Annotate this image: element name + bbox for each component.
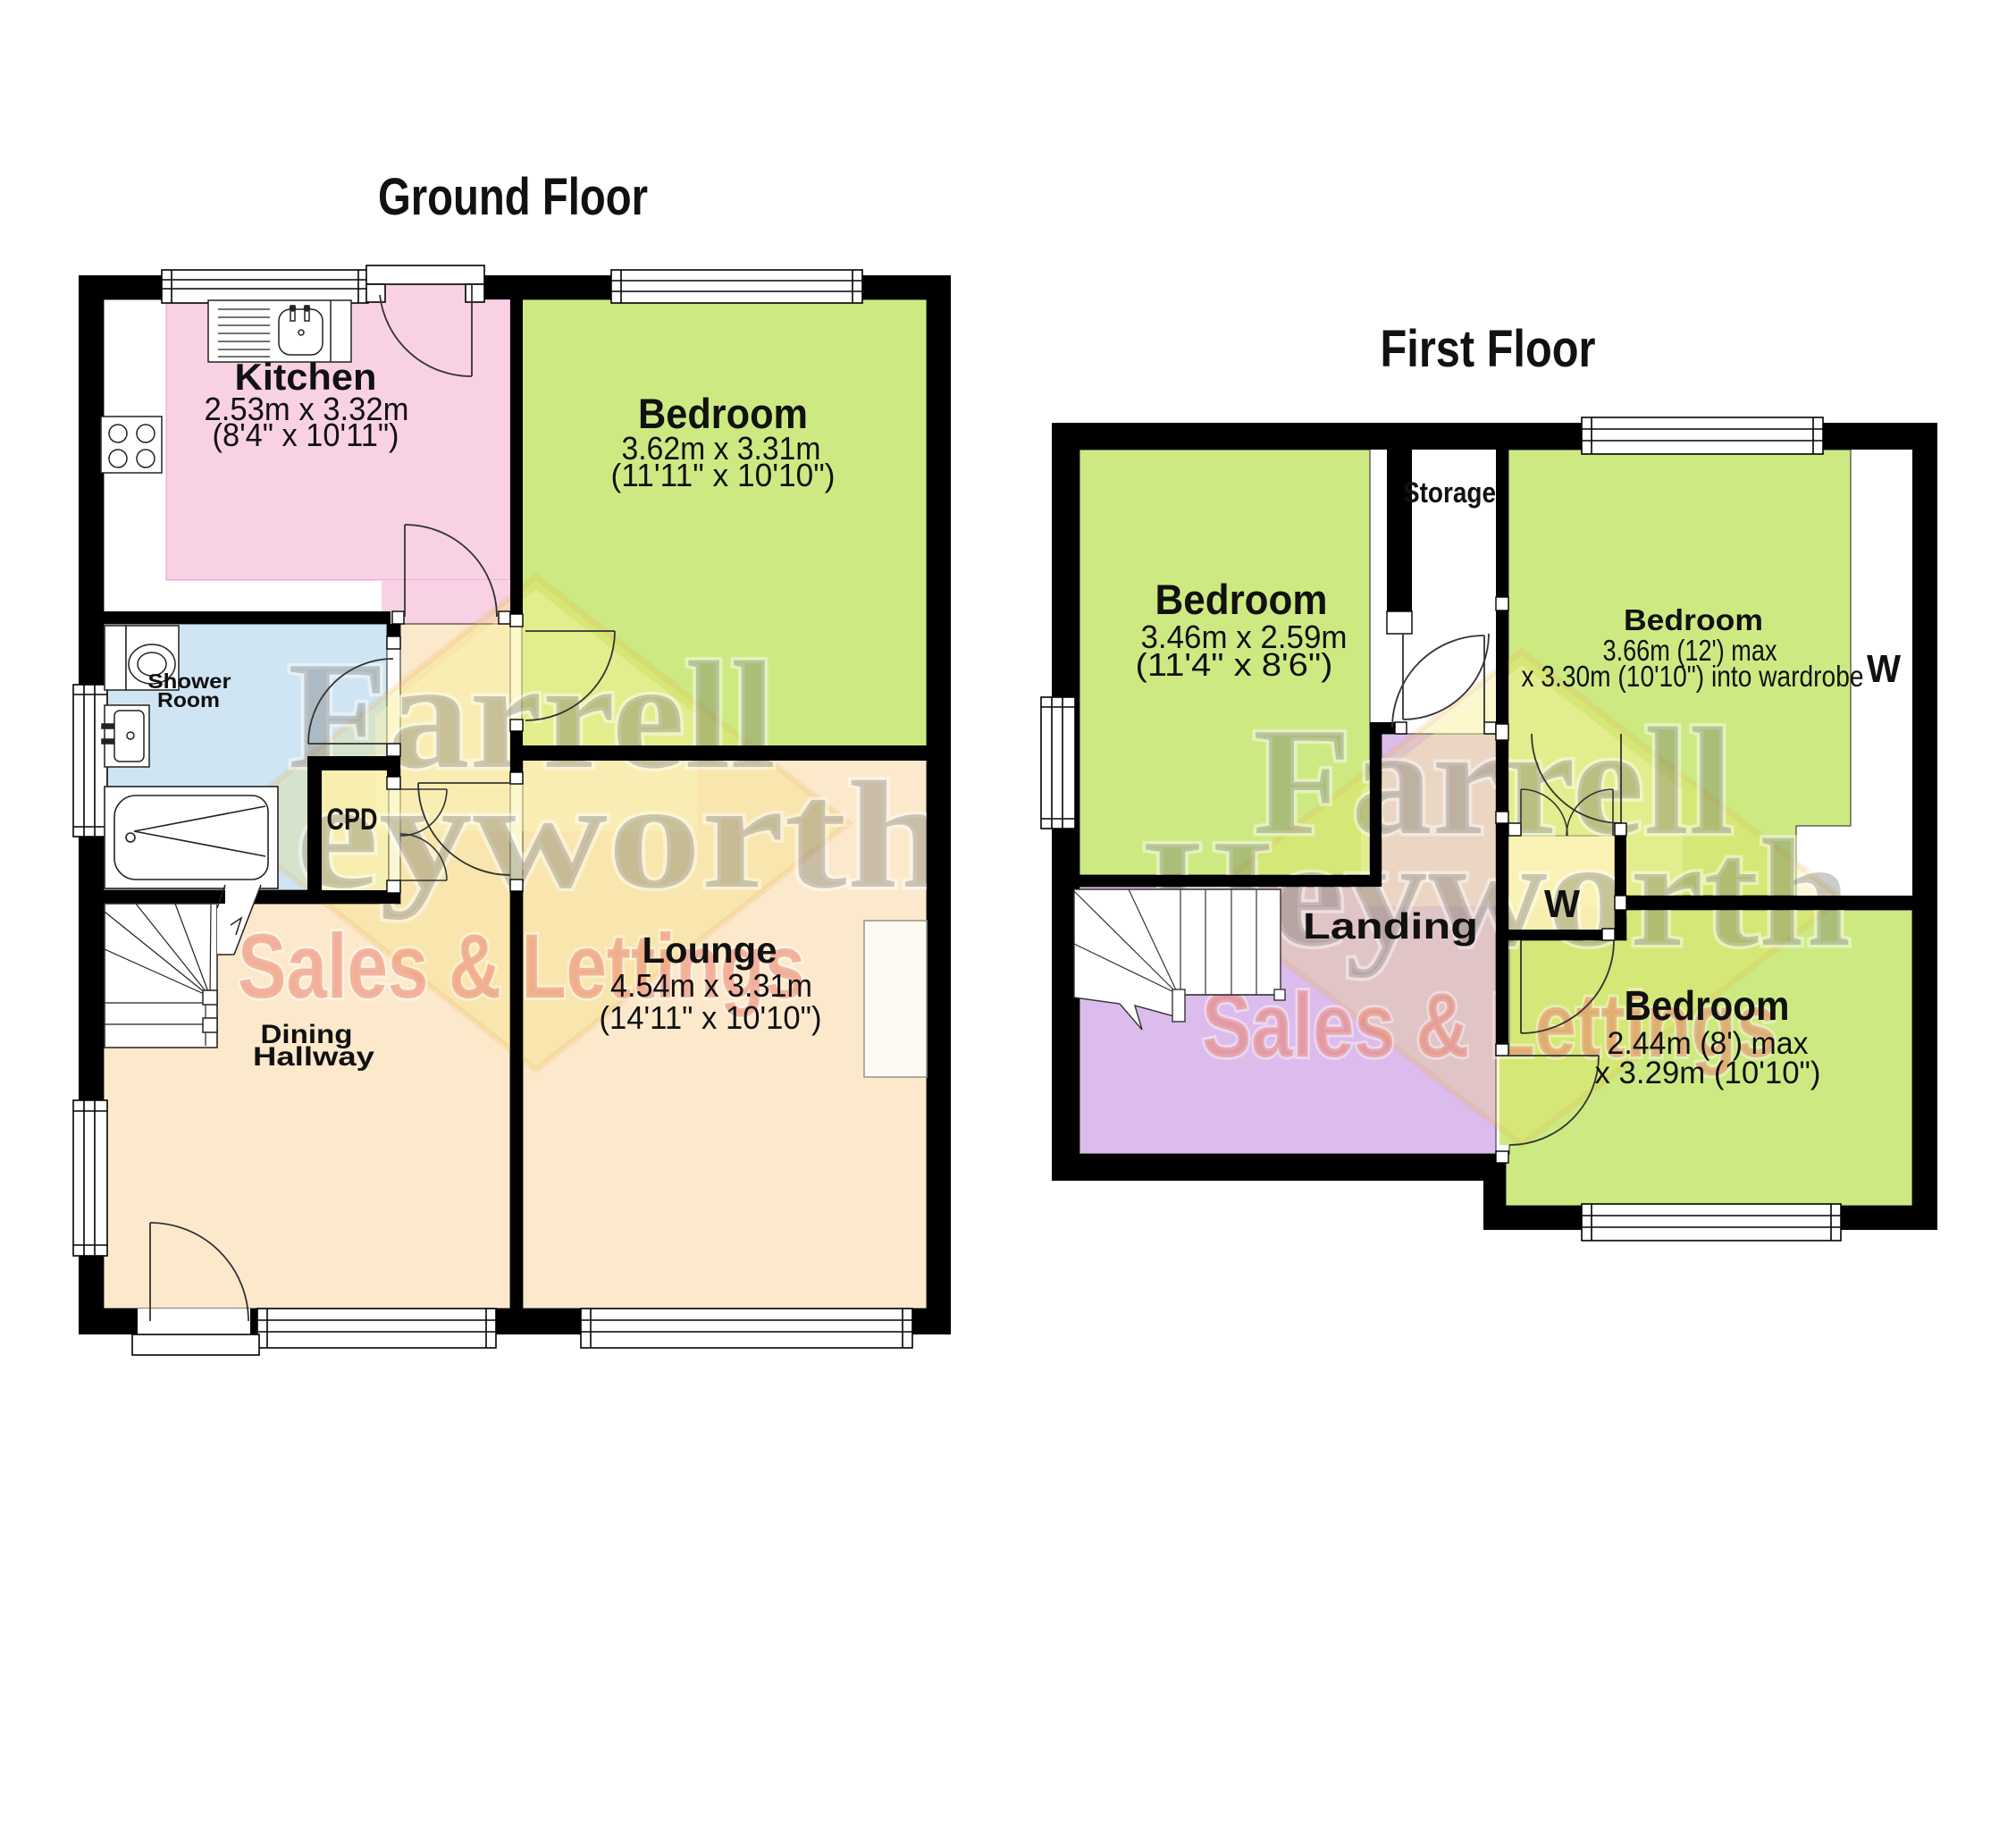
svg-text:CPD: CPD (327, 803, 378, 837)
svg-text:(11'4" x 8'6"): (11'4" x 8'6") (1136, 646, 1333, 683)
svg-text:Ground Floor: Ground Floor (378, 168, 648, 226)
svg-text:x 3.29m (10'10"): x 3.29m (10'10") (1595, 1056, 1821, 1090)
svg-text:(14'11" x 10'10"): (14'11" x 10'10") (600, 999, 822, 1036)
svg-text:(11'11" x 10'10"): (11'11" x 10'10") (611, 457, 836, 493)
svg-text:Bedroom: Bedroom (1625, 982, 1790, 1029)
svg-text:Lounge: Lounge (643, 930, 777, 971)
svg-text:First Floor: First Floor (1381, 320, 1596, 378)
svg-text:W: W (1544, 882, 1580, 926)
svg-text:W: W (1867, 647, 1901, 691)
svg-text:Hallway: Hallway (253, 1042, 374, 1072)
svg-text:Storage: Storage (1403, 476, 1496, 509)
svg-text:4.54m x 3.31m: 4.54m x 3.31m (610, 967, 812, 1004)
svg-text:Room: Room (157, 688, 220, 711)
svg-text:(8'4" x 10'11"): (8'4" x 10'11") (213, 417, 399, 453)
svg-text:Landing: Landing (1303, 905, 1478, 947)
svg-text:Bedroom: Bedroom (1155, 576, 1328, 623)
svg-text:x 3.30m (10'10") into wardrobe: x 3.30m (10'10") into wardrobe (1522, 660, 1864, 693)
svg-text:Bedroom: Bedroom (1624, 603, 1763, 636)
